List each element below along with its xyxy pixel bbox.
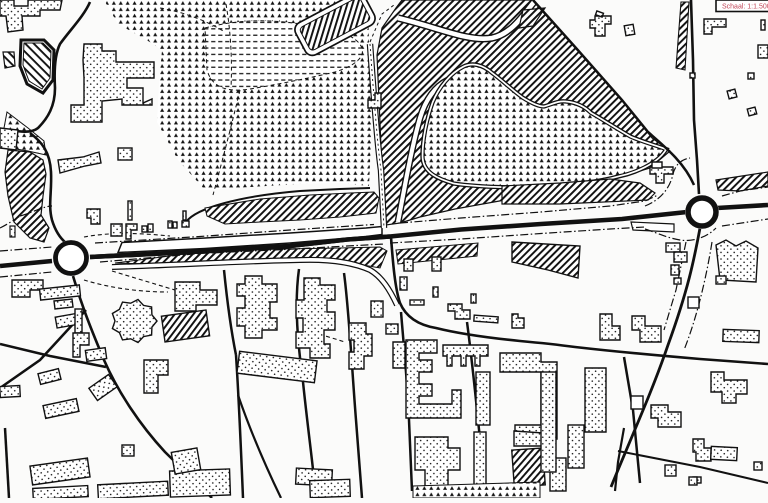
svg-text:Schaal: 1:1.500: Schaal: 1:1.500 — [722, 4, 768, 11]
